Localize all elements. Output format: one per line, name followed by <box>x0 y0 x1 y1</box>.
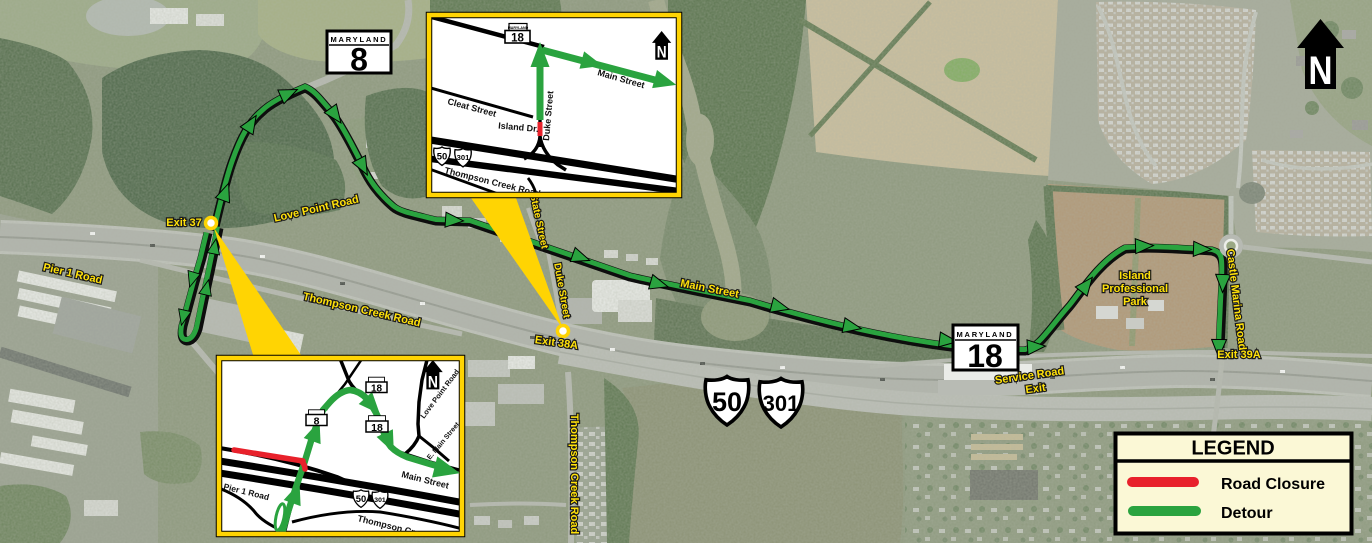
svg-text:18: 18 <box>371 383 383 394</box>
svg-text:18: 18 <box>967 338 1003 374</box>
svg-text:Road Closure: Road Closure <box>1221 476 1325 493</box>
svg-text:18: 18 <box>511 33 524 45</box>
svg-text:50: 50 <box>356 494 366 504</box>
svg-text:301: 301 <box>763 391 800 416</box>
svg-text:50: 50 <box>712 387 742 417</box>
svg-text:Thompson Creek Road: Thompson Creek Road <box>568 414 580 534</box>
svg-text:Detour: Detour <box>1221 505 1273 522</box>
svg-text:LEGEND: LEGEND <box>1191 438 1274 460</box>
svg-text:18: 18 <box>371 422 383 434</box>
svg-text:Island: Island <box>1119 270 1151 282</box>
svg-text:50: 50 <box>437 151 448 162</box>
svg-text:Professional: Professional <box>1102 283 1168 295</box>
svg-text:8: 8 <box>350 42 368 78</box>
svg-text:301: 301 <box>374 497 386 504</box>
svg-text:301: 301 <box>457 153 470 162</box>
svg-text:8: 8 <box>314 416 320 428</box>
svg-text:Park: Park <box>1123 296 1148 308</box>
svg-text:Exit 37: Exit 37 <box>166 217 201 229</box>
svg-text:MARYLAND: MARYLAND <box>508 26 529 30</box>
svg-text:Exit 39A: Exit 39A <box>1217 349 1260 361</box>
